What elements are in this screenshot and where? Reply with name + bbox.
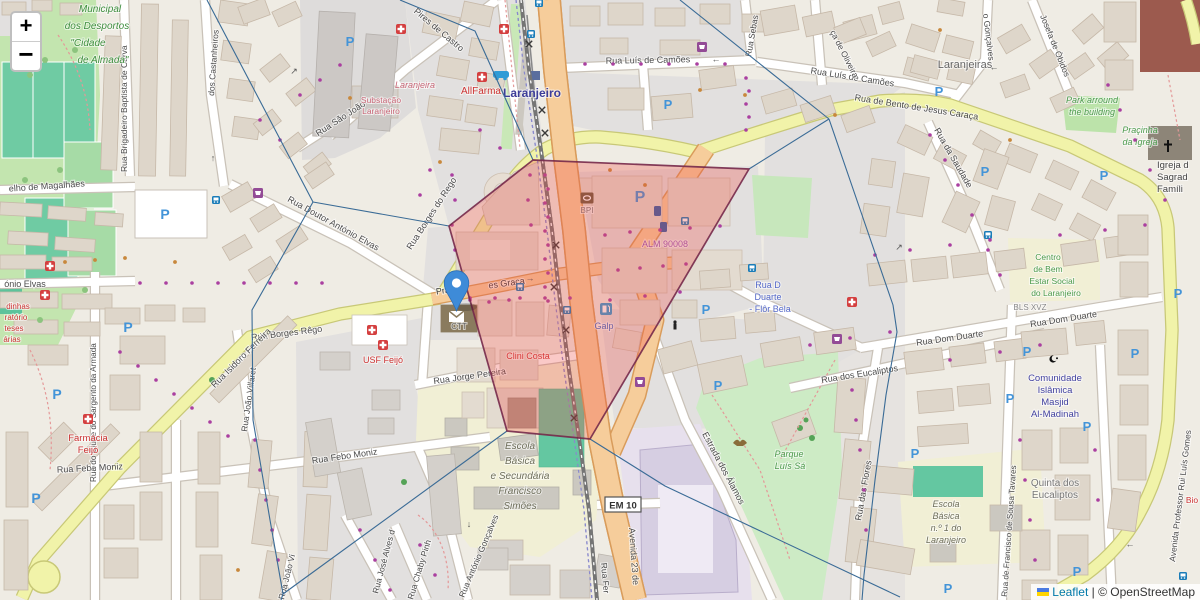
svg-text:Quinta dos: Quinta dos: [1031, 478, 1079, 489]
svg-text:Centro: Centro: [1035, 252, 1061, 262]
svg-text:Islâmica: Islâmica: [1038, 385, 1074, 396]
svg-text:Rua Luís de Camões: Rua Luís de Camões: [606, 54, 691, 65]
svg-text:Bio: Bio: [1186, 495, 1199, 505]
svg-text:- Flôr Bela: - Flôr Bela: [749, 304, 791, 314]
svg-text:Farmácia: Farmácia: [68, 433, 108, 444]
svg-text:P: P: [1100, 168, 1109, 183]
svg-text:Francisco: Francisco: [498, 486, 542, 497]
svg-text:AllFarma: AllFarma: [461, 86, 501, 97]
svg-text:P: P: [1174, 286, 1183, 301]
svg-text:Duarte: Duarte: [754, 292, 781, 302]
svg-text:Feijó: Feijó: [78, 445, 99, 456]
svg-text:ónio Elvas: ónio Elvas: [4, 279, 46, 289]
svg-text:Sagrad: Sagrad: [1157, 172, 1188, 183]
svg-text:P: P: [911, 446, 920, 461]
svg-text:árias: árias: [3, 335, 20, 344]
svg-text:P: P: [714, 378, 723, 393]
svg-text:Comunidade: Comunidade: [1028, 373, 1082, 384]
svg-text:dos Desportos: dos Desportos: [65, 21, 129, 32]
svg-text:Municipal: Municipal: [79, 4, 122, 15]
svg-text:P: P: [52, 386, 61, 402]
svg-text:BLS XVZ: BLS XVZ: [1014, 303, 1047, 312]
svg-text:Laranjeiras: Laranjeiras: [938, 59, 993, 71]
svg-text:Igreja d: Igreja d: [1157, 160, 1189, 171]
svg-text:Masjid: Masjid: [1041, 397, 1068, 408]
svg-text:←: ←: [712, 54, 721, 64]
svg-text:P: P: [1083, 419, 1092, 434]
svg-text:ratório: ratório: [5, 313, 28, 322]
svg-text:↗: ↗: [290, 66, 298, 76]
svg-text:Eucaliptos: Eucaliptos: [1032, 490, 1078, 501]
svg-text:P: P: [31, 490, 40, 506]
svg-text:P: P: [944, 581, 953, 596]
svg-text:Simões: Simões: [503, 501, 536, 512]
svg-text:P: P: [346, 34, 355, 49]
svg-text:Laranjeira: Laranjeira: [395, 80, 435, 90]
svg-text:Rua do Clube do Sargento da Ar: Rua do Clube do Sargento da Armada: [89, 343, 98, 482]
svg-text:P: P: [123, 319, 132, 335]
svg-text:Básica: Básica: [932, 511, 959, 521]
svg-text:P: P: [160, 206, 169, 222]
svg-text:"Cidade: "Cidade: [70, 38, 106, 49]
svg-text:P: P: [664, 97, 673, 112]
svg-text:do Laranjeiro: do Laranjeiro: [1031, 288, 1081, 298]
svg-text:P: P: [1131, 346, 1140, 361]
svg-text:P: P: [702, 302, 711, 317]
svg-text:P: P: [1006, 391, 1015, 406]
svg-text:de Bem: de Bem: [1033, 264, 1062, 274]
svg-text:Rua D: Rua D: [755, 280, 781, 290]
svg-text:the building: the building: [1069, 107, 1115, 117]
svg-text:P: P: [981, 164, 990, 179]
svg-text:n.º 1 do: n.º 1 do: [931, 523, 962, 533]
svg-text:P: P: [1073, 564, 1082, 579]
svg-text:Escola: Escola: [505, 441, 535, 452]
svg-text:Substação: Substação: [361, 95, 401, 105]
svg-text:de Almada": de Almada": [78, 55, 129, 66]
svg-text:Básica: Básica: [505, 456, 535, 467]
svg-text:Parque: Parque: [774, 449, 803, 459]
svg-text:↑: ↑: [211, 153, 216, 163]
svg-text:Laranjeiro: Laranjeiro: [362, 106, 400, 116]
svg-text:Estar Social: Estar Social: [1029, 276, 1074, 286]
svg-text:teses: teses: [4, 324, 23, 333]
svg-text:Laranjeiro: Laranjeiro: [926, 535, 966, 545]
svg-text:Famíli: Famíli: [1157, 184, 1183, 195]
svg-text:da Igreja: da Igreja: [1122, 137, 1157, 147]
svg-text:dinhas: dinhas: [6, 302, 30, 311]
svg-text:P: P: [935, 84, 944, 99]
svg-text:Luís Sá: Luís Sá: [775, 461, 806, 471]
svg-text:↓: ↓: [467, 519, 472, 529]
svg-text:Park arround: Park arround: [1066, 95, 1119, 105]
svg-text:←: ←: [1126, 539, 1135, 549]
svg-text:Laranjeiro: Laranjeiro: [503, 86, 561, 100]
svg-text:↗: ↗: [895, 242, 903, 252]
svg-text:Escola: Escola: [932, 499, 959, 509]
svg-text:P: P: [1023, 344, 1032, 359]
svg-text:USF Feijó: USF Feijó: [363, 355, 403, 365]
svg-text:Al-Madinah: Al-Madinah: [1031, 409, 1079, 420]
svg-text:EM 10: EM 10: [609, 501, 636, 512]
svg-text:e Secundária: e Secundária: [491, 471, 550, 482]
svg-text:CTT: CTT: [451, 322, 467, 331]
svg-text:Praçinha: Praçinha: [1122, 125, 1158, 135]
svg-text:←: ←: [990, 62, 999, 72]
